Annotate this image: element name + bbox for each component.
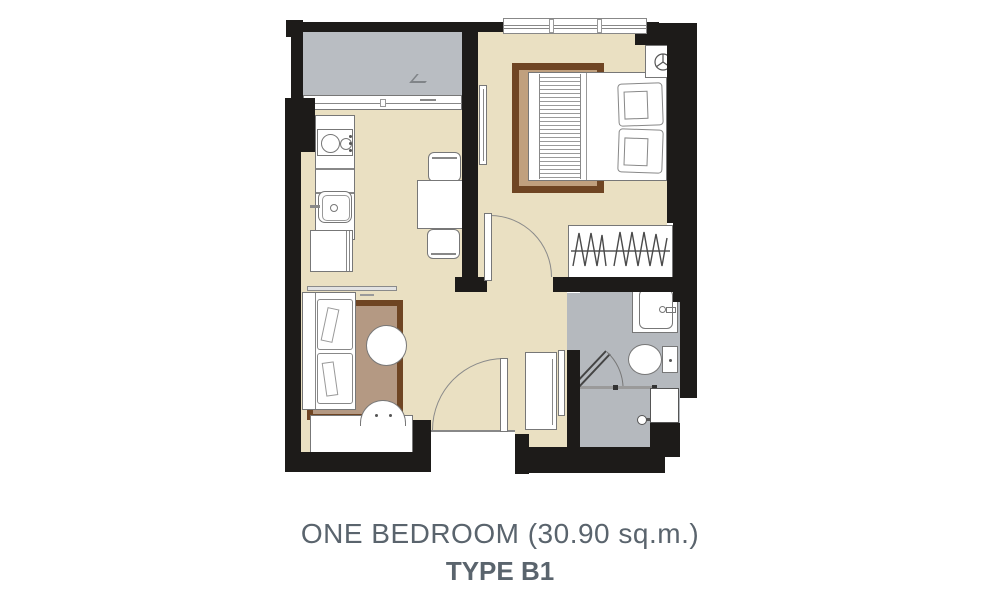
floorplan-page: { "caption": { "title": "ONE BEDROOM (30… [0, 0, 1000, 600]
pillow-bottom [617, 128, 664, 174]
tv-console [525, 352, 557, 430]
wardrobe [568, 225, 673, 278]
wall-bathroom-left [567, 350, 580, 460]
tv [558, 350, 565, 416]
wall-living-bedroom-stub [455, 277, 487, 292]
plan-title: ONE BEDROOM (30.90 sq.m.) [0, 518, 1000, 550]
wall-balcony-left [291, 22, 303, 108]
wall-bottom-right [515, 447, 665, 473]
mirror [479, 85, 487, 165]
wall-divider-bedroom [462, 22, 478, 290]
wall-entry-step-left [413, 420, 431, 472]
plan-type: TYPE B1 [0, 556, 1000, 587]
kitchen-sink-icon [318, 191, 352, 223]
stove-icon [317, 129, 353, 156]
bedroom-window [503, 18, 647, 34]
blanket [539, 74, 581, 179]
bed [528, 72, 667, 181]
wall-niche-bottom [650, 423, 680, 457]
caption: ONE BEDROOM (30.90 sq.m.) TYPE B1 [0, 518, 1000, 587]
wall-shelf [307, 286, 397, 291]
dining-chair-bottom [427, 229, 460, 259]
wall-balcony-top [291, 22, 467, 32]
wall-right-upper [667, 23, 697, 223]
hanging-clothes-icon [569, 226, 672, 277]
shower-niche [650, 388, 679, 423]
entrance-recess [431, 432, 515, 482]
balcony-sliding-door [303, 95, 462, 110]
pillow-top [617, 82, 663, 127]
shelf-bracket-right [360, 294, 374, 296]
coffee-table [366, 325, 407, 366]
sofa [302, 292, 356, 410]
toilet-tank [662, 346, 678, 373]
wall-bedroom-top-left [478, 22, 505, 32]
dining-chair-top [428, 152, 461, 182]
entrance-door-leaf [500, 358, 508, 432]
dining-table [417, 180, 466, 229]
bedroom-door-leaf [484, 213, 492, 281]
floor-plan [285, 10, 700, 475]
wall-bathroom-top [553, 277, 682, 292]
wall-left [285, 98, 301, 472]
wall-bottom-left [293, 452, 415, 472]
wall-bathroom-right [680, 277, 697, 398]
shower-door [570, 343, 645, 398]
refrigerator-icon [310, 230, 353, 272]
